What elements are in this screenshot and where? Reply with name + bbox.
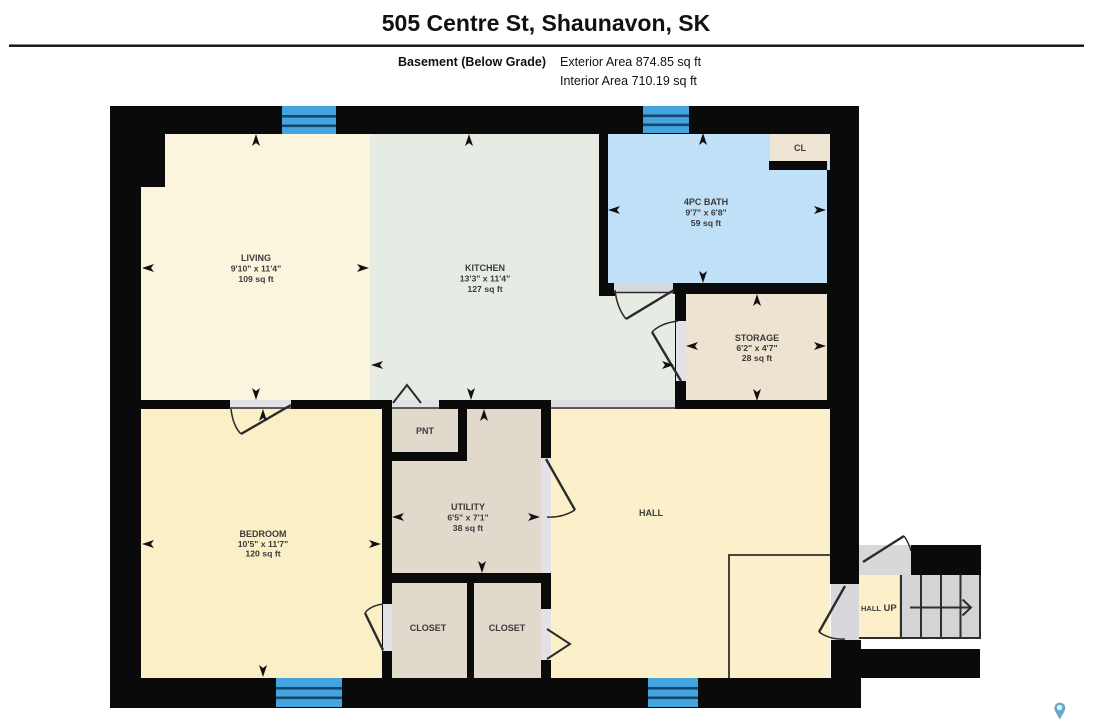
svg-text:LIVING: LIVING (241, 253, 271, 263)
svg-text:6'5" x 7'1": 6'5" x 7'1" (447, 513, 488, 523)
svg-text:9'10" x 11'4": 9'10" x 11'4" (231, 264, 282, 274)
svg-text:Basement (Below Grade): Basement (Below Grade) (398, 55, 546, 69)
svg-text:127 sq ft: 127 sq ft (467, 284, 502, 294)
svg-text:STORAGE: STORAGE (735, 333, 779, 343)
svg-text:HALL: HALL (861, 604, 881, 613)
svg-text:6'2" x 4'7": 6'2" x 4'7" (736, 343, 777, 353)
svg-text:Exterior Area 874.85 sq ft: Exterior Area 874.85 sq ft (560, 55, 702, 69)
svg-text:505 Centre St, Shaunavon, SK: 505 Centre St, Shaunavon, SK (382, 10, 711, 36)
svg-text:109 sq ft: 109 sq ft (238, 274, 273, 284)
svg-text:CLOSET: CLOSET (489, 623, 526, 633)
svg-text:HALL: HALL (639, 508, 663, 518)
svg-text:9'7" x 6'8": 9'7" x 6'8" (685, 208, 726, 218)
svg-text:13'3" x 11'4": 13'3" x 11'4" (460, 274, 511, 284)
svg-text:Interior Area 710.19 sq ft: Interior Area 710.19 sq ft (560, 74, 697, 88)
svg-text:BEDROOM: BEDROOM (240, 529, 287, 539)
svg-text:KITCHEN: KITCHEN (465, 263, 505, 273)
svg-text:PNT: PNT (416, 426, 435, 436)
svg-text:120 sq ft: 120 sq ft (245, 549, 280, 559)
svg-text:UTILITY: UTILITY (451, 502, 485, 512)
svg-text:UP: UP (884, 603, 898, 614)
svg-text:4PC BATH: 4PC BATH (684, 197, 728, 207)
svg-text:10'5" x 11'7": 10'5" x 11'7" (238, 539, 289, 549)
svg-text:CLOSET: CLOSET (410, 623, 447, 633)
svg-text:38 sq ft: 38 sq ft (453, 523, 484, 533)
svg-text:28 sq ft: 28 sq ft (742, 353, 773, 363)
svg-text:59 sq ft: 59 sq ft (691, 218, 722, 228)
svg-text:CL: CL (794, 143, 806, 153)
